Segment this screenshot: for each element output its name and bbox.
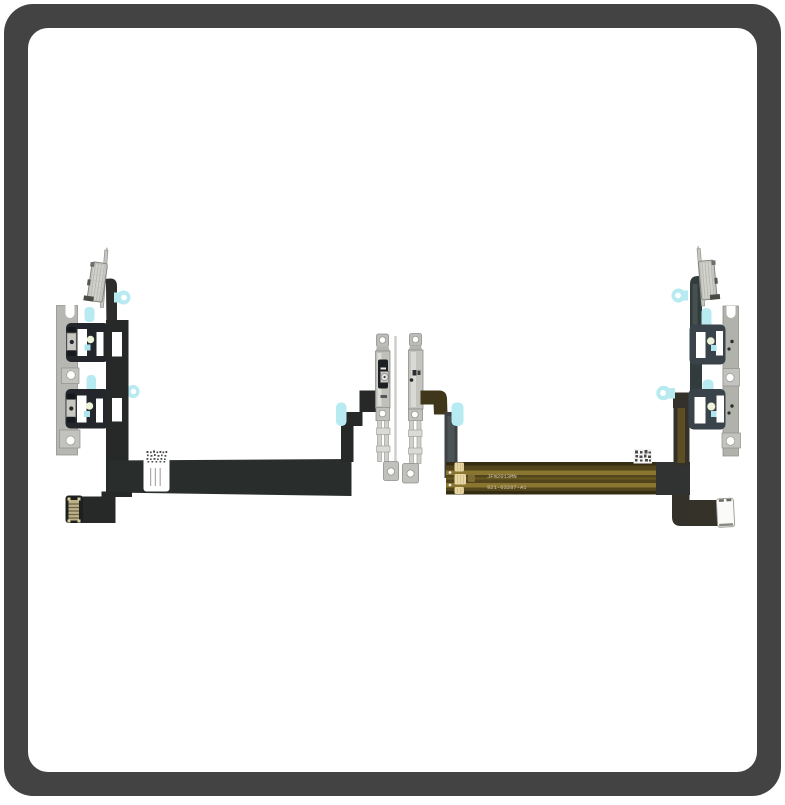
- svg-text:JFm2013MN: JFm2013MN: [487, 473, 517, 480]
- svg-text:921-03287-A1: 921-03287-A1: [487, 484, 527, 491]
